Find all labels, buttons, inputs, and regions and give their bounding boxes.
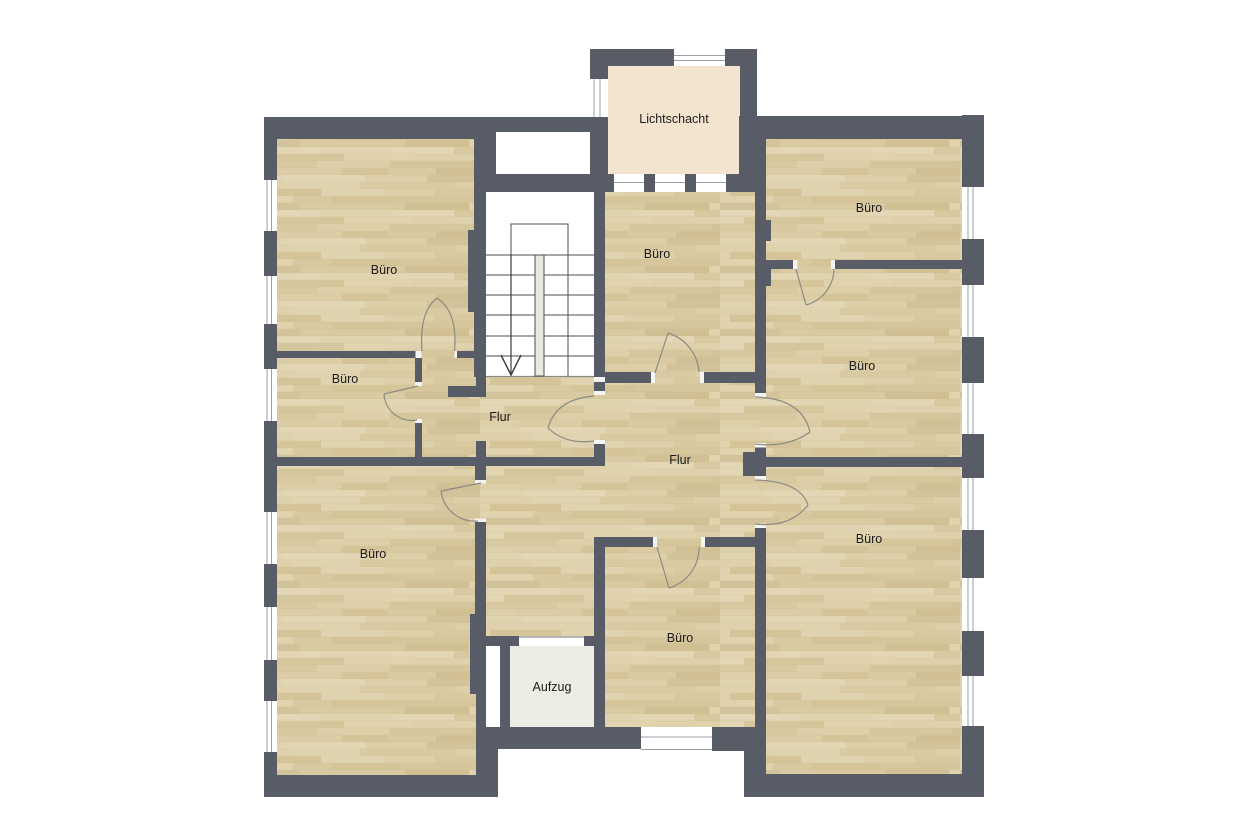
svg-text:Büro: Büro (856, 201, 882, 215)
svg-text:Flur: Flur (669, 453, 691, 467)
svg-text:Lichtschacht: Lichtschacht (639, 112, 709, 126)
svg-text:Büro: Büro (371, 263, 397, 277)
svg-text:Büro: Büro (644, 247, 670, 261)
svg-text:Büro: Büro (667, 631, 693, 645)
svg-text:Büro: Büro (332, 372, 358, 386)
svg-text:Büro: Büro (856, 532, 882, 546)
svg-text:Aufzug: Aufzug (533, 680, 572, 694)
svg-text:Flur: Flur (489, 410, 511, 424)
svg-text:Büro: Büro (849, 359, 875, 373)
svg-text:Büro: Büro (360, 547, 386, 561)
